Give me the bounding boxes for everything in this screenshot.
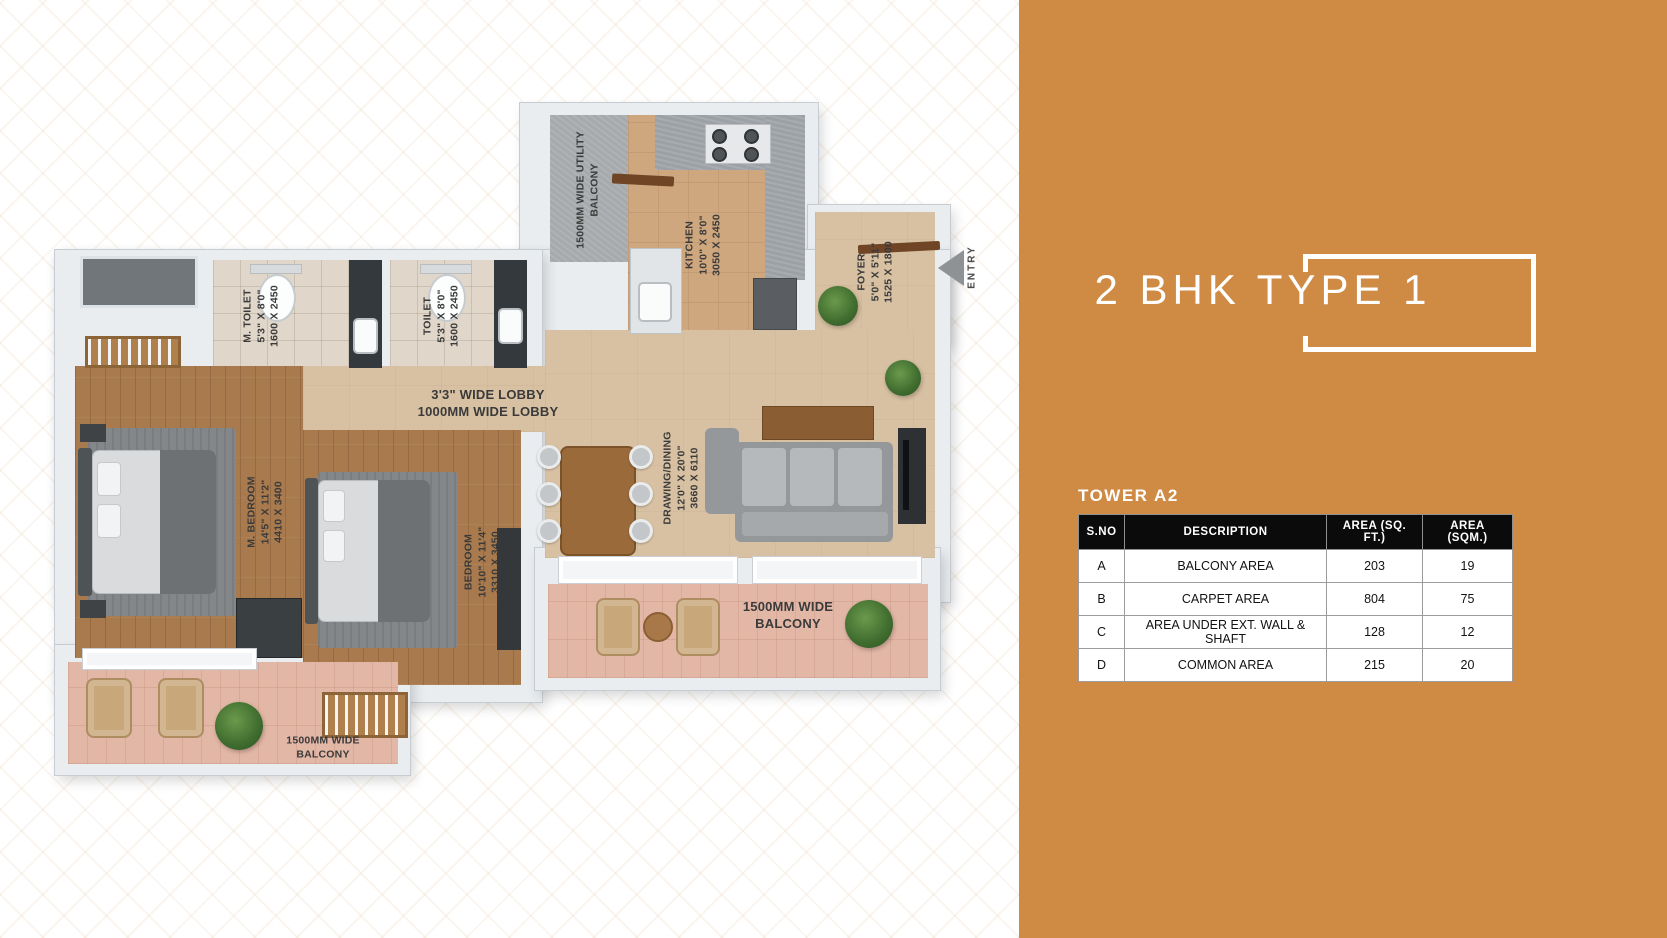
plant-living (885, 360, 921, 396)
area-table-cell: BALCONY AREA (1125, 550, 1327, 583)
area-table-row: DCOMMON AREA21520 (1079, 649, 1513, 682)
dining-chair (629, 445, 653, 469)
balcony-left-chair-2 (158, 678, 204, 738)
dining-chair (537, 482, 561, 506)
m-bedroom-nightstand-2 (80, 600, 106, 618)
area-table-header-cell: AREA (SQ. FT.) (1327, 515, 1423, 550)
tv-screen (903, 440, 909, 510)
sofa-cushion (838, 448, 882, 506)
entry-label-text: ENTRY (966, 245, 979, 289)
dining-table (560, 446, 636, 556)
m-toilet-wc-tank (250, 264, 302, 274)
bed-headboard (305, 478, 318, 624)
m-toilet-sink (353, 318, 378, 354)
m-toilet-label-text: M. TOILET 5'3" X 8'0" 1600 X 2450 (242, 285, 283, 347)
foyer-label-text: FOYER 5'0" X 5'11" 1525 X 1800 (856, 241, 897, 303)
fridge (753, 278, 797, 330)
kitchen-counter-right (765, 115, 805, 280)
bed-pillow-2 (323, 530, 345, 562)
sofa-cushion (790, 448, 834, 506)
window-bedroom-balcony (82, 648, 257, 670)
area-table-body: ABALCONY AREA20319BCARPET AREA80475CAREA… (1079, 550, 1513, 682)
area-table-cell: 20 (1423, 649, 1513, 682)
bed-blanket (378, 480, 430, 622)
area-table-cell: 19 (1423, 550, 1513, 583)
area-table-cell: 804 (1327, 583, 1423, 616)
plant-foyer (818, 286, 858, 326)
area-table-row: BCARPET AREA80475 (1079, 583, 1513, 616)
area-table-row: ABALCONY AREA20319 (1079, 550, 1513, 583)
m-bed-blanket (160, 450, 216, 594)
area-table-cell: COMMON AREA (1125, 649, 1327, 682)
area-table-header-cell: AREA (SQM.) (1423, 515, 1513, 550)
area-table-cell: CARPET AREA (1125, 583, 1327, 616)
balcony-right-table (643, 612, 673, 642)
dining-chair (629, 482, 653, 506)
window-rack-bottom (322, 692, 408, 738)
area-table-cell: 12 (1423, 616, 1513, 649)
entry-arrow-icon (938, 250, 964, 286)
utility-balcony-label-text: 1500MM WIDE UTILITY BALCONY (574, 131, 601, 249)
drawing-dining-label-text: DRAWING/DINING 12'0" X 20'0" 3660 X 6110 (662, 431, 703, 524)
area-table-cell: AREA UNDER EXT. WALL & SHAFT (1125, 616, 1327, 649)
info-panel (1019, 0, 1667, 938)
stove-icon (705, 124, 771, 164)
sofa-corner (705, 428, 739, 514)
m-bed-pillow-2 (97, 504, 121, 538)
lobby-label-text: 3'3" WIDE LOBBY 1000MM WIDE LOBBY (418, 387, 559, 421)
sofa-seat (742, 512, 888, 536)
m-bedroom-label-text: M. BEDROOM 14'5" X 11'2" 4410 X 3400 (246, 476, 287, 547)
kitchen-label-text: KITCHEN 10'0" X 8'0" 3050 X 2450 (684, 214, 725, 276)
area-table-cell: B (1079, 583, 1125, 616)
m-bed-pillow-1 (97, 462, 121, 496)
area-table-header-cell: S.NO (1079, 515, 1125, 550)
balcony-left-chair-1 (86, 678, 132, 738)
bedroom-label-text: BEDROOM 10'10" X 11'4" 3310 X 3450 (463, 527, 504, 598)
area-table-header-row: S.NODESCRIPTIONAREA (SQ. FT.)AREA (SQM.) (1079, 515, 1513, 550)
area-table-header-cell: DESCRIPTION (1125, 515, 1327, 550)
area-table-cell: 128 (1327, 616, 1423, 649)
dining-chair (629, 519, 653, 543)
balcony-right-chair-1 (596, 598, 640, 656)
area-table: S.NODESCRIPTIONAREA (SQ. FT.)AREA (SQM.)… (1078, 514, 1513, 682)
table-title: TOWER A2 (1078, 486, 1179, 506)
m-bed-headboard (78, 448, 92, 596)
area-table-cell: C (1079, 616, 1125, 649)
balcony-right-chair-2 (676, 598, 720, 656)
area-table-cell: 215 (1327, 649, 1423, 682)
brochure-page: 1500MM WIDE UTILITY BALCONY KITCHEN 10'0… (0, 0, 1667, 938)
window-rack-top (85, 336, 181, 368)
area-table-row: CAREA UNDER EXT. WALL & SHAFT12812 (1079, 616, 1513, 649)
window-living-balcony-1 (558, 556, 738, 584)
dining-chair (537, 445, 561, 469)
balcony-right-label-text: 1500MM WIDE BALCONY (743, 599, 833, 633)
kitchen-sink (638, 282, 672, 322)
area-table-cell: 203 (1327, 550, 1423, 583)
area-table-cell: A (1079, 550, 1125, 583)
m-bedroom-nightstand-1 (80, 424, 106, 442)
plant-balcony-right (845, 600, 893, 648)
floor-plan: 1500MM WIDE UTILITY BALCONY KITCHEN 10'0… (0, 0, 1019, 938)
toilet-sink (498, 308, 523, 344)
bed-pillow-1 (323, 490, 345, 522)
area-table-cell: D (1079, 649, 1125, 682)
toilet-wc-tank (420, 264, 472, 274)
area-table-cell: 75 (1423, 583, 1513, 616)
balcony-left-label-text: 1500MM WIDE BALCONY (286, 734, 359, 761)
storage-shaft (80, 256, 198, 308)
sofa-console (762, 406, 874, 440)
sofa-cushion (742, 448, 786, 506)
window-living-balcony-2 (752, 556, 922, 584)
plant-balcony-left (215, 702, 263, 750)
toilet-label-text: TOILET 5'3" X 8'0" 1600 X 2450 (422, 285, 463, 347)
dining-chair (537, 519, 561, 543)
plan-type-title: 2 BHK TYPE 1 (1094, 266, 1431, 314)
